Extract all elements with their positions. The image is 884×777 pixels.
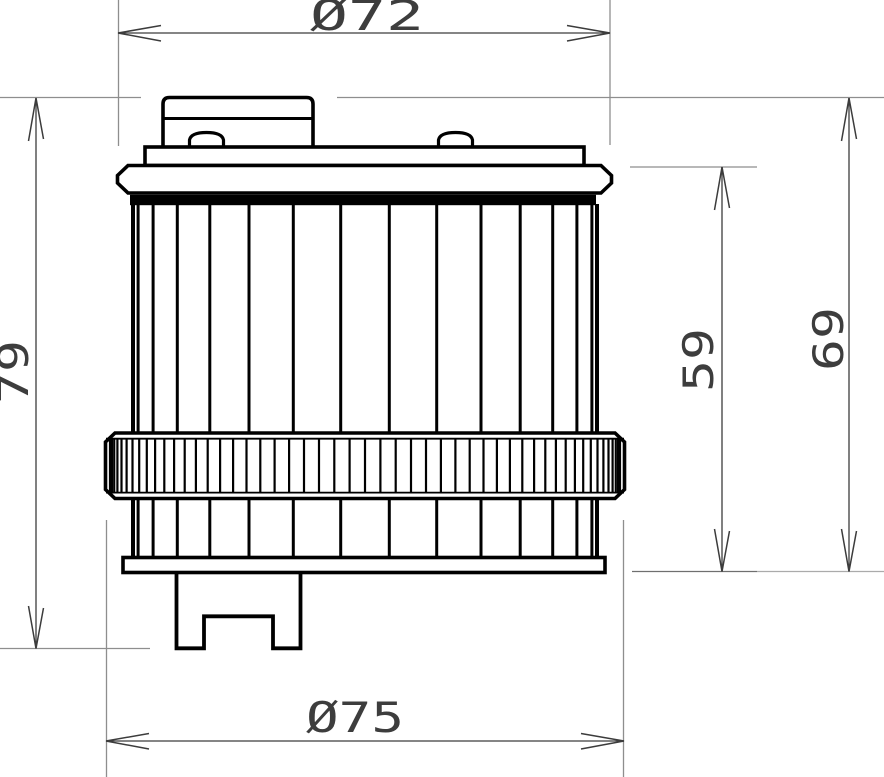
drawing-sheet: Ø72 Ø75 79 59 69 xyxy=(0,0,884,777)
label-top-diameter: Ø72 xyxy=(310,0,424,40)
label-cap-to-base-height: 69 xyxy=(804,307,853,371)
label-body-height: 59 xyxy=(674,328,723,392)
label-bottom-diameter: Ø75 xyxy=(306,693,404,742)
mounting-flange xyxy=(118,166,612,194)
technical-drawing-canvas: Ø72 Ø75 79 59 69 xyxy=(0,0,884,777)
outlet-fitting xyxy=(177,570,301,648)
dimension-labels: Ø72 Ø75 79 59 69 xyxy=(0,0,853,742)
label-overall-height: 79 xyxy=(0,340,38,404)
pleated-media-lower xyxy=(133,495,597,559)
gasket-seal-band xyxy=(130,195,596,205)
oil-filter-part xyxy=(106,98,625,649)
base-plate xyxy=(123,558,605,573)
top-cap xyxy=(163,98,313,152)
top-plate xyxy=(145,147,584,166)
pleated-media-upper xyxy=(133,204,597,436)
